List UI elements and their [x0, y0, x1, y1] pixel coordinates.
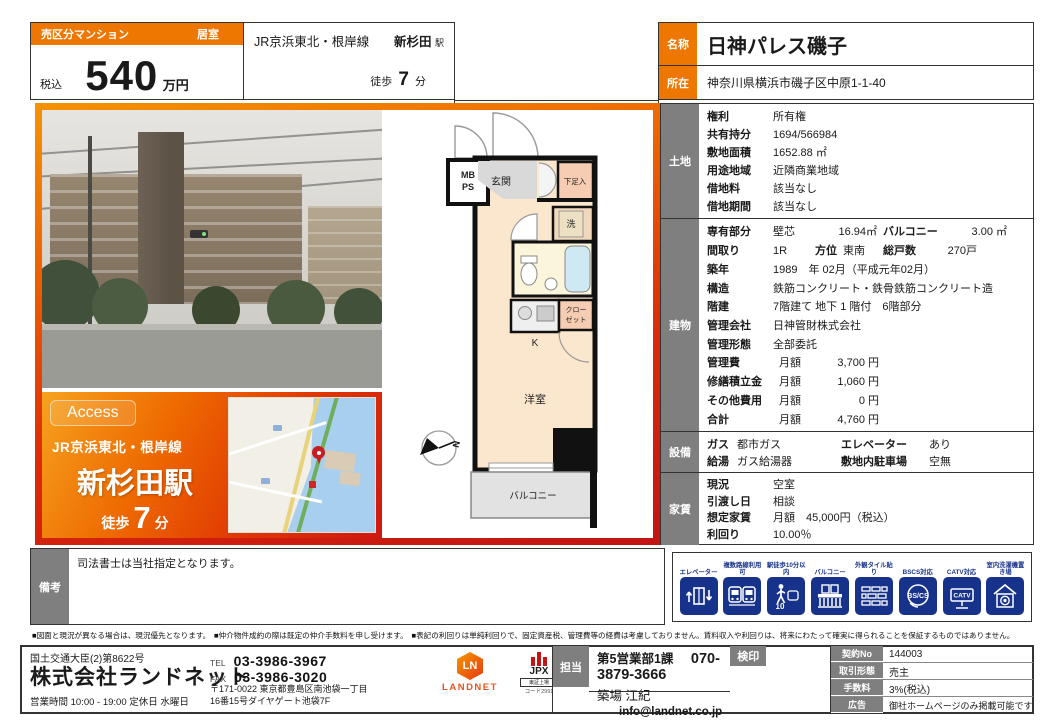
line1-station: 新杉田 — [394, 35, 432, 49]
walk-unit: 分 — [415, 76, 426, 88]
fee-value: 3%(税込) — [883, 680, 1033, 696]
access-walk: 徒歩7分 — [42, 500, 228, 536]
feature-bscs: BSCS対応 BS/CS — [897, 561, 938, 615]
facility-section: 設備 ガス 都市ガス エレベーター あり 給湯 ガス給湯器 敷地内駐車場 空無 — [661, 431, 1033, 472]
property-name-row: 名称 日神パレス磯子 — [658, 22, 1034, 66]
access-line-name: JR京浜東北・根岸線 — [52, 436, 228, 456]
svg-text:BS/CS: BS/CS — [907, 593, 929, 600]
ad-value: 御社ホームページのみ掲載可能です — [883, 697, 1033, 713]
land-section-label: 土地 — [661, 104, 699, 218]
closet-label-2: ゼット — [566, 315, 587, 324]
details-table: 土地 権利所有権 共有持分1694/566984 敷地面積1652.88 ㎡ 用… — [660, 103, 1034, 545]
seal-cell — [766, 646, 830, 713]
land-row: 共有持分1694/566984 — [707, 126, 1025, 142]
building-row: 構造鉄筋コンクリート・鉄骨鉄筋コンクリート造 — [707, 280, 1025, 296]
walk-minutes: 7 — [395, 69, 412, 90]
svg-text:CATV: CATV — [953, 593, 971, 600]
fee-label: 手数料 — [831, 680, 883, 696]
landnet-logo: LN LANDNET — [434, 652, 506, 693]
contract-row: 契約No 144003 — [831, 646, 1033, 663]
category-label: 売区分マンション — [41, 26, 129, 42]
ad-label: 広告 — [831, 697, 883, 713]
line1-walk: 徒歩 7 分 — [370, 69, 426, 91]
laundry-label: 洗 — [566, 218, 575, 229]
closet-area — [559, 300, 593, 330]
building-section: 建物 専有部分 壁芯 16.94㎡ バルコニー 3.00 ㎡ 間取り 1R 方位… — [661, 218, 1033, 431]
feature-walk10: 駅徒歩10分以内 10 — [766, 561, 807, 615]
fax-row: FAX03-3986-3020 — [210, 669, 327, 685]
land-row: 用途地域近隣商業地域 — [707, 162, 1025, 178]
door-arc — [455, 126, 487, 158]
room-use-label: 居室 — [197, 26, 219, 42]
stove-grill — [537, 306, 554, 321]
catv-icon: CATV — [943, 577, 981, 615]
property-address-row: 所在 神奈川県横浜市磯子区中原1-1-40 — [658, 65, 1034, 100]
building-row: 築年1989 年 02月（平成元年02月） — [707, 261, 1025, 277]
walk-label: 徒歩 — [101, 515, 129, 531]
stove-burner — [519, 307, 532, 320]
map-badge — [261, 478, 270, 484]
walk-minutes: 7 — [129, 500, 154, 535]
tel-number: 03-3986-3967 — [234, 653, 327, 669]
building-layout-row: 間取り 1R 方位 東南 総戸数 270戸 — [707, 242, 1025, 258]
main-visual-inner: Access JR京浜東北・根岸線 新杉田駅 徒歩7分 — [42, 110, 653, 538]
map-building-block — [339, 470, 361, 486]
staff-dept: 第5営業部1課 — [597, 652, 673, 666]
price-box: 売区分マンション 居室 税込 540 万円 — [30, 22, 244, 100]
building-row: 階建7階建て 地下 1 階付 6階部分 — [707, 298, 1025, 314]
rent-section-label: 家賃 — [661, 473, 699, 545]
remarks-text: 司法書士は当社指定となります。 — [69, 549, 249, 624]
feature-balcony: バルコニー — [810, 561, 851, 615]
room-label: 洋室 — [524, 392, 546, 406]
bathtub — [565, 246, 590, 292]
ad-row: 広告 御社ホームページのみ掲載可能です — [831, 697, 1033, 713]
access-station: 新杉田駅 — [42, 460, 228, 502]
door-arc — [493, 113, 538, 158]
facility-row: 給湯 ガス給湯器 敷地内駐車場 空無 — [707, 453, 1025, 469]
tile-icon — [855, 577, 893, 615]
price-value: 540 万円 — [31, 55, 243, 97]
fax-label: FAX — [210, 674, 226, 684]
kitchen-label: K — [532, 338, 539, 349]
staff-info: 第5営業部1課 070-3879-3666 築場 江紀 info@landnet… — [589, 646, 730, 692]
rent-row: 引渡し日相談 — [707, 493, 1025, 509]
contract-table: 契約No 144003 取引形態 売主 手数料 3%(税込) 広告 御社ホームペ… — [830, 646, 1033, 713]
building-fee-row: その他費用月額0 円 — [707, 392, 1025, 408]
deal-type: 売主 — [883, 663, 1033, 679]
location-map — [228, 397, 376, 533]
price-number: 540 — [85, 52, 158, 99]
feature-catv: CATV対応 CATV — [941, 561, 982, 615]
land-row: 借地料該当なし — [707, 180, 1025, 196]
balcony-icon — [811, 577, 849, 615]
staff-table: 担当 第5営業部1課 070-3879-3666 築場 江紀 info@land… — [552, 646, 830, 713]
traffic-light — [190, 230, 208, 238]
wall — [590, 470, 597, 528]
building-fee-row: 合計月額4,760 円 — [707, 411, 1025, 427]
landnet-logo-text: LANDNET — [434, 682, 506, 693]
price-unit: 万円 — [163, 78, 189, 93]
floor-plan-drawing: N 玄関 MB PS 下足入 洗 K クロー ゼット 洋室 バルコニー — [387, 110, 653, 538]
sink — [545, 278, 557, 290]
remarks-box: 備考 司法書士は当社指定となります。 — [30, 548, 665, 625]
building-row: 管理会社日神管財株式会社 — [707, 317, 1025, 333]
land-row: 敷地面積1652.88 ㎡ — [707, 144, 1025, 160]
rent-row: 想定家賃月額 45,000円（税込） — [707, 509, 1025, 525]
contract-no-label: 契約No — [831, 646, 883, 662]
rent-row: 現況空室 — [707, 476, 1025, 492]
tel-row: TEL03-3986-3967 — [210, 653, 327, 669]
building-photo — [42, 110, 382, 388]
contract-no: 144003 — [883, 646, 1033, 662]
name-label: 名称 — [659, 23, 697, 65]
map-marker-square — [309, 481, 316, 488]
fee-row: 手数料 3%(税込) — [831, 680, 1033, 697]
feature-elevator: エレベーター — [678, 561, 719, 615]
line1-station-wrap: 新杉田 駅 — [394, 31, 444, 50]
walk-label: 徒歩 — [370, 76, 392, 88]
fax-number: 03-3986-3020 — [234, 669, 327, 685]
staff-name: 築場 江紀 — [597, 689, 650, 703]
building-section-label: 建物 — [661, 219, 699, 431]
seal-label: 検印 — [730, 646, 766, 666]
floor-plan: N 玄関 MB PS 下足入 洗 K クロー ゼット 洋室 バルコニー — [387, 110, 653, 538]
business-hours: 営業時間 10:00 - 19:00 定休日 水曜日 — [30, 694, 189, 708]
shoebox-label: 下足入 — [564, 177, 587, 186]
property-name: 日神パレス磯子 — [697, 23, 847, 65]
category-header: 売区分マンション 居室 — [31, 23, 243, 45]
balcony-label: バルコニー — [509, 491, 556, 502]
mb-label: MB — [461, 170, 475, 180]
ps-label: PS — [462, 182, 474, 192]
elevator-icon — [680, 577, 718, 615]
building-tower — [138, 132, 184, 304]
land-section: 土地 権利所有権 共有持分1694/566984 敷地面積1652.88 ㎡ 用… — [661, 104, 1033, 218]
power-line — [42, 126, 382, 156]
landnet-logo-mark: LN — [457, 652, 483, 680]
address-label: 所在 — [659, 66, 697, 99]
deal-type-row: 取引形態 売主 — [831, 663, 1033, 680]
street — [42, 324, 382, 388]
toilet — [521, 263, 537, 285]
bscs-icon: BS/CS — [899, 577, 937, 615]
walk-unit: 分 — [155, 515, 169, 531]
main-visual-frame: Access JR京浜東北・根岸線 新杉田駅 徒歩7分 — [35, 103, 660, 545]
wall-block — [553, 428, 595, 470]
building-fee-row: 修繕積立金月額1,060 円 — [707, 373, 1025, 389]
walk10-icon: 10 — [767, 577, 805, 615]
price-area: 税込 540 万円 — [31, 45, 243, 99]
building-fee-row: 管理費月額3,700 円 — [707, 354, 1025, 370]
land-row: 権利所有権 — [707, 108, 1025, 124]
property-address: 神奈川県横浜市磯子区中原1-1-40 — [697, 66, 886, 99]
compass-north-label: N — [450, 440, 461, 449]
feature-tile: 外観タイル貼り — [853, 561, 894, 615]
disclaimer-text: ■図面と現況が異なる場合は、現況優先となります。 ■仲介物件成約の際は既定の仲介… — [32, 630, 1034, 641]
footer: 国土交通大臣(2)第8622号 株式会社ランドネット 営業時間 10:00 - … — [20, 645, 1034, 714]
washer-icon — [986, 577, 1024, 615]
map-badge — [273, 425, 282, 431]
compass-needle — [420, 438, 439, 455]
company-address: 〒171-0022 東京都豊島区南池袋一丁目 16番15号ダイヤゲート池袋7F — [210, 684, 368, 707]
access-box: Access JR京浜東北・根岸線 新杉田駅 徒歩7分 — [42, 392, 382, 538]
feature-icons-box: エレベーター 複数路線利用可 駅徒歩10分以内 — [672, 552, 1032, 622]
trains-icon — [723, 577, 761, 615]
building-row: 管理形態全部委託 — [707, 336, 1025, 352]
land-row: 借地期間該当なし — [707, 198, 1025, 214]
staff-email: info@landnet.co.jp — [619, 706, 722, 718]
line1-name: JR京浜東北・根岸線 — [254, 31, 369, 50]
deal-type-label: 取引形態 — [831, 663, 883, 679]
rent-section: 家賃 現況空室 引渡し日相談 想定家賃月額 45,000円（税込） 利回り10.… — [661, 472, 1033, 545]
feature-multi-lines: 複数路線利用可 — [722, 561, 763, 615]
facility-section-label: 設備 — [661, 432, 699, 472]
facility-row: ガス 都市ガス エレベーター あり — [707, 436, 1025, 452]
rent-row: 利回り10.00％ — [707, 526, 1025, 542]
map-building-block — [324, 450, 356, 472]
closet-label-1: クロー — [566, 306, 587, 314]
svg-text:10: 10 — [776, 602, 785, 611]
line1-station-suffix: 駅 — [435, 38, 444, 48]
remarks-label: 備考 — [31, 549, 69, 624]
access-line1-box: JR京浜東北・根岸線 新杉田 駅 徒歩 7 分 — [243, 22, 455, 100]
access-badge: Access — [50, 400, 136, 426]
feature-washer: 室内洗濯機置き場 — [985, 561, 1026, 615]
entrance-label: 玄関 — [491, 175, 511, 188]
neighbor-building — [308, 206, 382, 304]
building-area-row: 専有部分 壁芯 16.94㎡ バルコニー 3.00 ㎡ — [707, 223, 1025, 239]
toilet-tank — [521, 256, 537, 263]
tel-label: TEL — [210, 658, 226, 668]
staff-label: 担当 — [553, 646, 589, 688]
